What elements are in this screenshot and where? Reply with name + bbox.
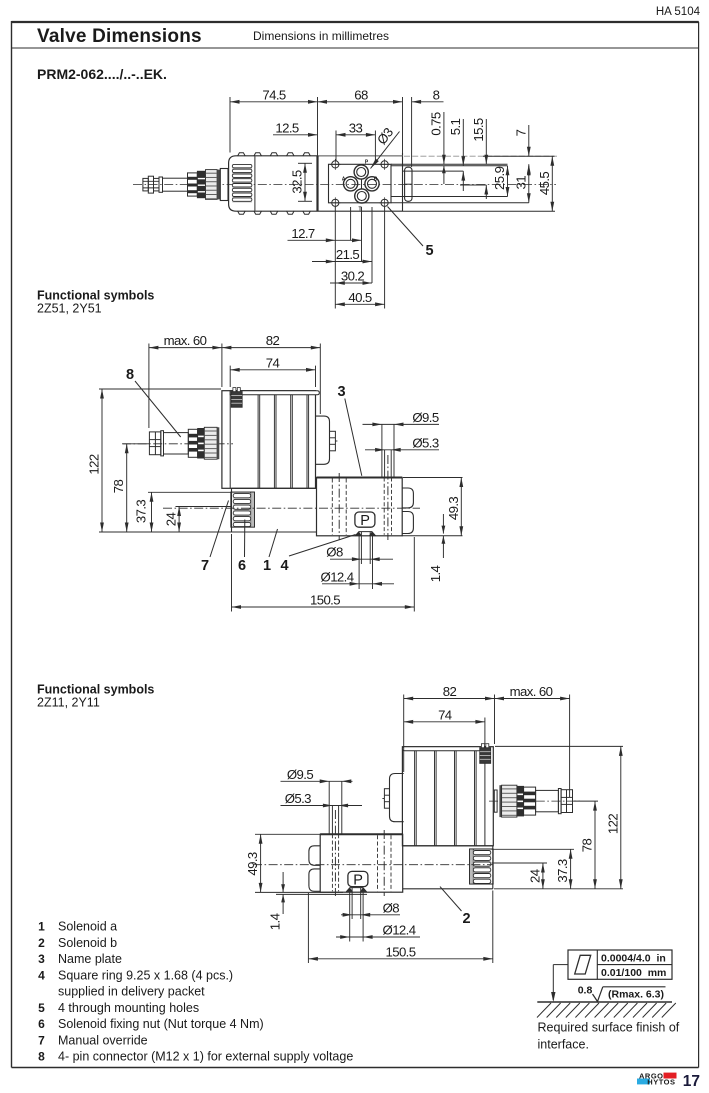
svg-text:max. 60: max. 60: [510, 684, 553, 699]
svg-text:7: 7: [201, 558, 209, 574]
svg-text:25.9: 25.9: [492, 166, 507, 190]
svg-text:15.5: 15.5: [471, 118, 486, 142]
svg-text:P: P: [360, 513, 370, 529]
svg-text:7: 7: [38, 1033, 45, 1047]
svg-text:74: 74: [438, 707, 452, 722]
svg-text:8: 8: [126, 367, 134, 383]
svg-text:2Z11, 2Y11: 2Z11, 2Y11: [37, 696, 100, 710]
svg-text:Dimensions in millimetres: Dimensions in millimetres: [253, 29, 389, 43]
svg-text:2: 2: [38, 936, 45, 950]
svg-text:B: B: [374, 177, 378, 183]
svg-text:Manual override: Manual override: [58, 1033, 148, 1047]
svg-text:1: 1: [38, 920, 45, 934]
svg-text:1.4: 1.4: [268, 913, 283, 930]
svg-text:82: 82: [266, 333, 280, 348]
svg-text:150.5: 150.5: [385, 944, 415, 959]
svg-text:1: 1: [263, 558, 271, 574]
svg-text:24: 24: [527, 869, 542, 883]
svg-text:78: 78: [580, 839, 595, 853]
svg-text:32.5: 32.5: [290, 170, 305, 194]
svg-text:74.5: 74.5: [262, 87, 286, 102]
svg-text:8: 8: [38, 1050, 45, 1064]
svg-text:37.3: 37.3: [134, 500, 149, 524]
svg-text:2: 2: [462, 911, 470, 927]
svg-text:5.1: 5.1: [448, 118, 463, 135]
svg-text:Square ring 9.25 x 1.68 (4 pcs: Square ring 9.25 x 1.68 (4 pcs.): [58, 968, 233, 982]
svg-text:37.3: 37.3: [555, 859, 570, 883]
svg-text:17: 17: [683, 1073, 700, 1090]
svg-text:Ø12.4: Ø12.4: [321, 569, 354, 584]
svg-text:Required surface finish of: Required surface finish of: [538, 1021, 680, 1035]
svg-text:Solenoid b: Solenoid b: [58, 936, 117, 950]
svg-text:Ø9.5: Ø9.5: [412, 410, 438, 425]
svg-text:4: 4: [38, 968, 45, 982]
svg-text:Solenoid a: Solenoid a: [58, 920, 117, 934]
svg-text:Ø5.3: Ø5.3: [285, 791, 311, 806]
svg-text:3: 3: [337, 384, 345, 400]
svg-text:(Rmax. 6.3): (Rmax. 6.3): [608, 989, 664, 1001]
svg-text:4- pin connector (M12 x 1) for: 4- pin connector (M12 x 1) for external …: [58, 1050, 353, 1064]
svg-text:PRM2-062..../..-..EK.: PRM2-062..../..-..EK.: [37, 66, 167, 82]
svg-text:P: P: [353, 872, 363, 888]
svg-text:78: 78: [111, 480, 126, 494]
svg-text:49.3: 49.3: [446, 497, 461, 521]
svg-text:A: A: [342, 177, 346, 183]
svg-text:5: 5: [425, 243, 433, 259]
svg-text:Ø8: Ø8: [383, 900, 400, 915]
svg-text:30.2: 30.2: [341, 269, 365, 284]
svg-text:4: 4: [280, 558, 288, 574]
svg-text:24: 24: [164, 513, 179, 527]
svg-text:6: 6: [38, 1017, 45, 1031]
svg-text:12.7: 12.7: [291, 226, 315, 241]
svg-text:Solenoid fixing nut (Nut torqu: Solenoid fixing nut (Nut torque 4 Nm): [58, 1017, 264, 1031]
svg-text:45.5: 45.5: [537, 172, 552, 196]
svg-text:4 through mounting holes: 4 through mounting holes: [58, 1001, 199, 1015]
svg-text:Functional symbols: Functional symbols: [37, 289, 154, 303]
svg-text:Ø5.3: Ø5.3: [412, 435, 438, 450]
svg-text:HA 5104: HA 5104: [656, 6, 701, 18]
svg-text:0.0004/4.0 in: 0.0004/4.0 in: [601, 952, 666, 964]
svg-text:49.3: 49.3: [245, 852, 260, 876]
svg-text:0.8: 0.8: [578, 985, 593, 997]
svg-text:21.5: 21.5: [336, 247, 360, 262]
svg-text:82: 82: [443, 684, 457, 699]
svg-text:8: 8: [433, 87, 440, 102]
svg-text:40.5: 40.5: [348, 290, 372, 305]
svg-text:0.01/100 mm: 0.01/100 mm: [601, 967, 666, 979]
svg-text:Valve Dimensions: Valve Dimensions: [37, 26, 202, 47]
svg-text:6: 6: [238, 558, 246, 574]
svg-text:150.5: 150.5: [310, 593, 340, 608]
svg-text:supplied in delivery packet: supplied in delivery packet: [58, 985, 205, 999]
svg-text:0.75: 0.75: [428, 112, 443, 136]
svg-text:interface.: interface.: [538, 1038, 589, 1052]
svg-text:122: 122: [605, 814, 620, 834]
svg-text:12.5: 12.5: [275, 120, 299, 135]
svg-text:max. 60: max. 60: [164, 333, 207, 348]
svg-text:2Z51, 2Y51: 2Z51, 2Y51: [37, 302, 102, 316]
svg-text:31: 31: [513, 176, 528, 190]
svg-text:Ø9.5: Ø9.5: [287, 767, 313, 782]
svg-text:74: 74: [266, 355, 280, 370]
svg-text:Ø8: Ø8: [326, 545, 343, 560]
svg-text:Name plate: Name plate: [58, 952, 122, 966]
svg-text:122: 122: [87, 454, 102, 474]
svg-text:Ø12.4: Ø12.4: [383, 923, 416, 938]
svg-text:33: 33: [349, 120, 363, 135]
svg-text:3: 3: [38, 952, 45, 966]
svg-text:5: 5: [38, 1001, 45, 1015]
svg-text:HYTOS: HYTOS: [647, 1077, 675, 1086]
svg-text:Functional symbols: Functional symbols: [37, 683, 154, 697]
svg-text:7: 7: [513, 129, 528, 136]
svg-text:68: 68: [354, 87, 368, 102]
svg-text:Ø3: Ø3: [374, 125, 396, 147]
svg-text:1.4: 1.4: [428, 565, 443, 582]
